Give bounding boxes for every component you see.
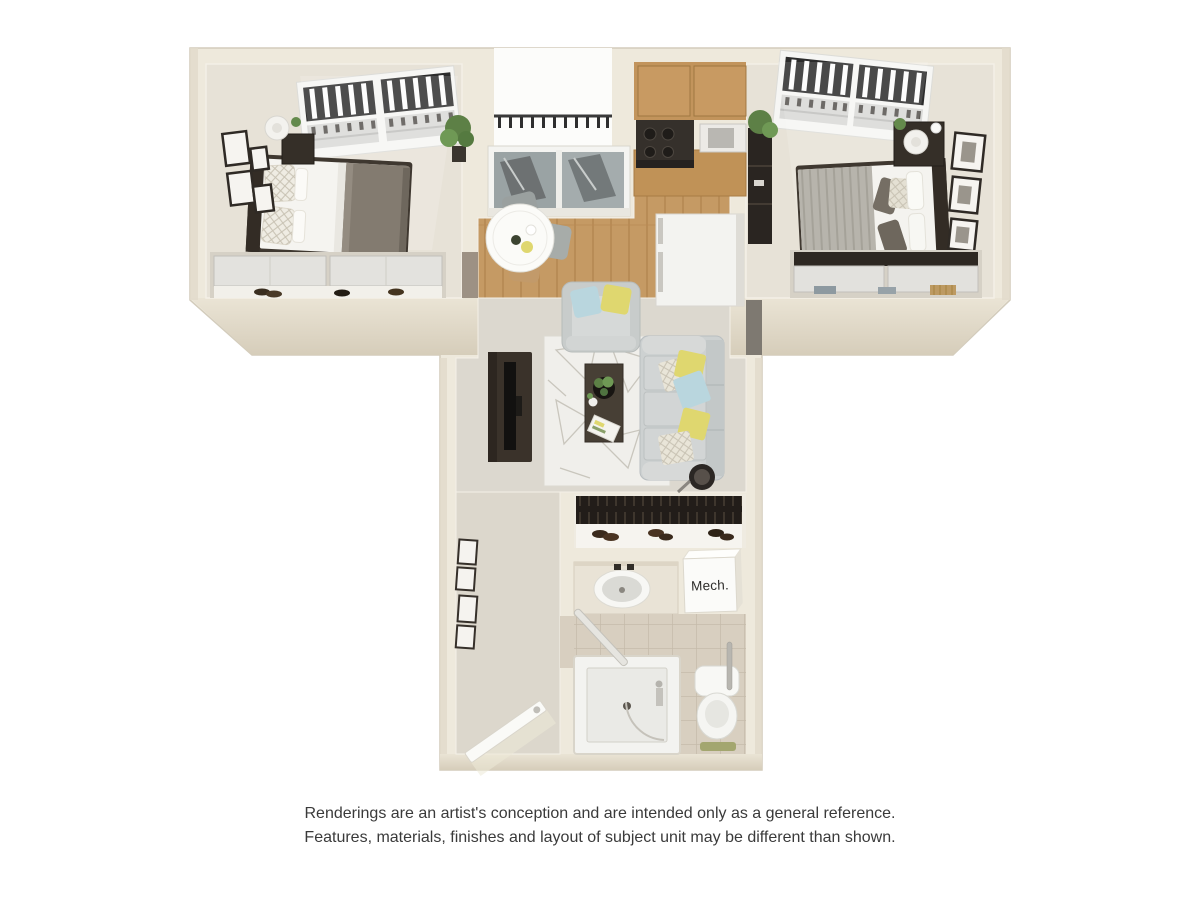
disclaimer: Renderings are an artist's conception an… bbox=[0, 802, 1200, 850]
microwave bbox=[700, 124, 746, 152]
tv-console bbox=[488, 352, 532, 462]
disclaimer-line-1: Renderings are an artist's conception an… bbox=[0, 802, 1200, 826]
plant-small bbox=[894, 118, 906, 130]
bathroom bbox=[560, 608, 746, 754]
bedroom-right-doorway bbox=[746, 300, 762, 355]
disclaimer-line-2: Features, materials, finishes and layout… bbox=[0, 826, 1200, 850]
bedroom-left-doorway bbox=[462, 252, 478, 298]
wall-art-hall bbox=[456, 595, 478, 648]
pillow-yellow bbox=[600, 284, 632, 315]
pillow-blue bbox=[569, 285, 602, 318]
hall-closet bbox=[574, 494, 746, 548]
closet-right bbox=[790, 250, 982, 298]
stove bbox=[636, 120, 694, 168]
grab-bar bbox=[727, 642, 732, 690]
hanging-clothes bbox=[576, 496, 742, 524]
shower-faucet bbox=[656, 688, 663, 706]
plant-small bbox=[291, 117, 301, 127]
floorplan-rendering bbox=[0, 0, 1200, 900]
coffee-table bbox=[585, 364, 623, 442]
vanity bbox=[574, 562, 678, 614]
closet-left bbox=[210, 252, 446, 298]
nightstand-left bbox=[282, 134, 314, 164]
floorplan-page: Mech. Renderings are an artist's concept… bbox=[0, 0, 1200, 900]
faucet bbox=[614, 564, 621, 570]
bathroom-doorway bbox=[560, 616, 574, 668]
sofa bbox=[640, 336, 724, 480]
balcony-floor bbox=[494, 48, 612, 148]
mech-closet-label: Mech. bbox=[683, 557, 737, 613]
tv bbox=[504, 362, 516, 450]
bath-mat bbox=[700, 742, 736, 751]
armchair bbox=[562, 282, 640, 352]
refrigerator bbox=[656, 214, 744, 306]
dining-table bbox=[486, 204, 554, 272]
